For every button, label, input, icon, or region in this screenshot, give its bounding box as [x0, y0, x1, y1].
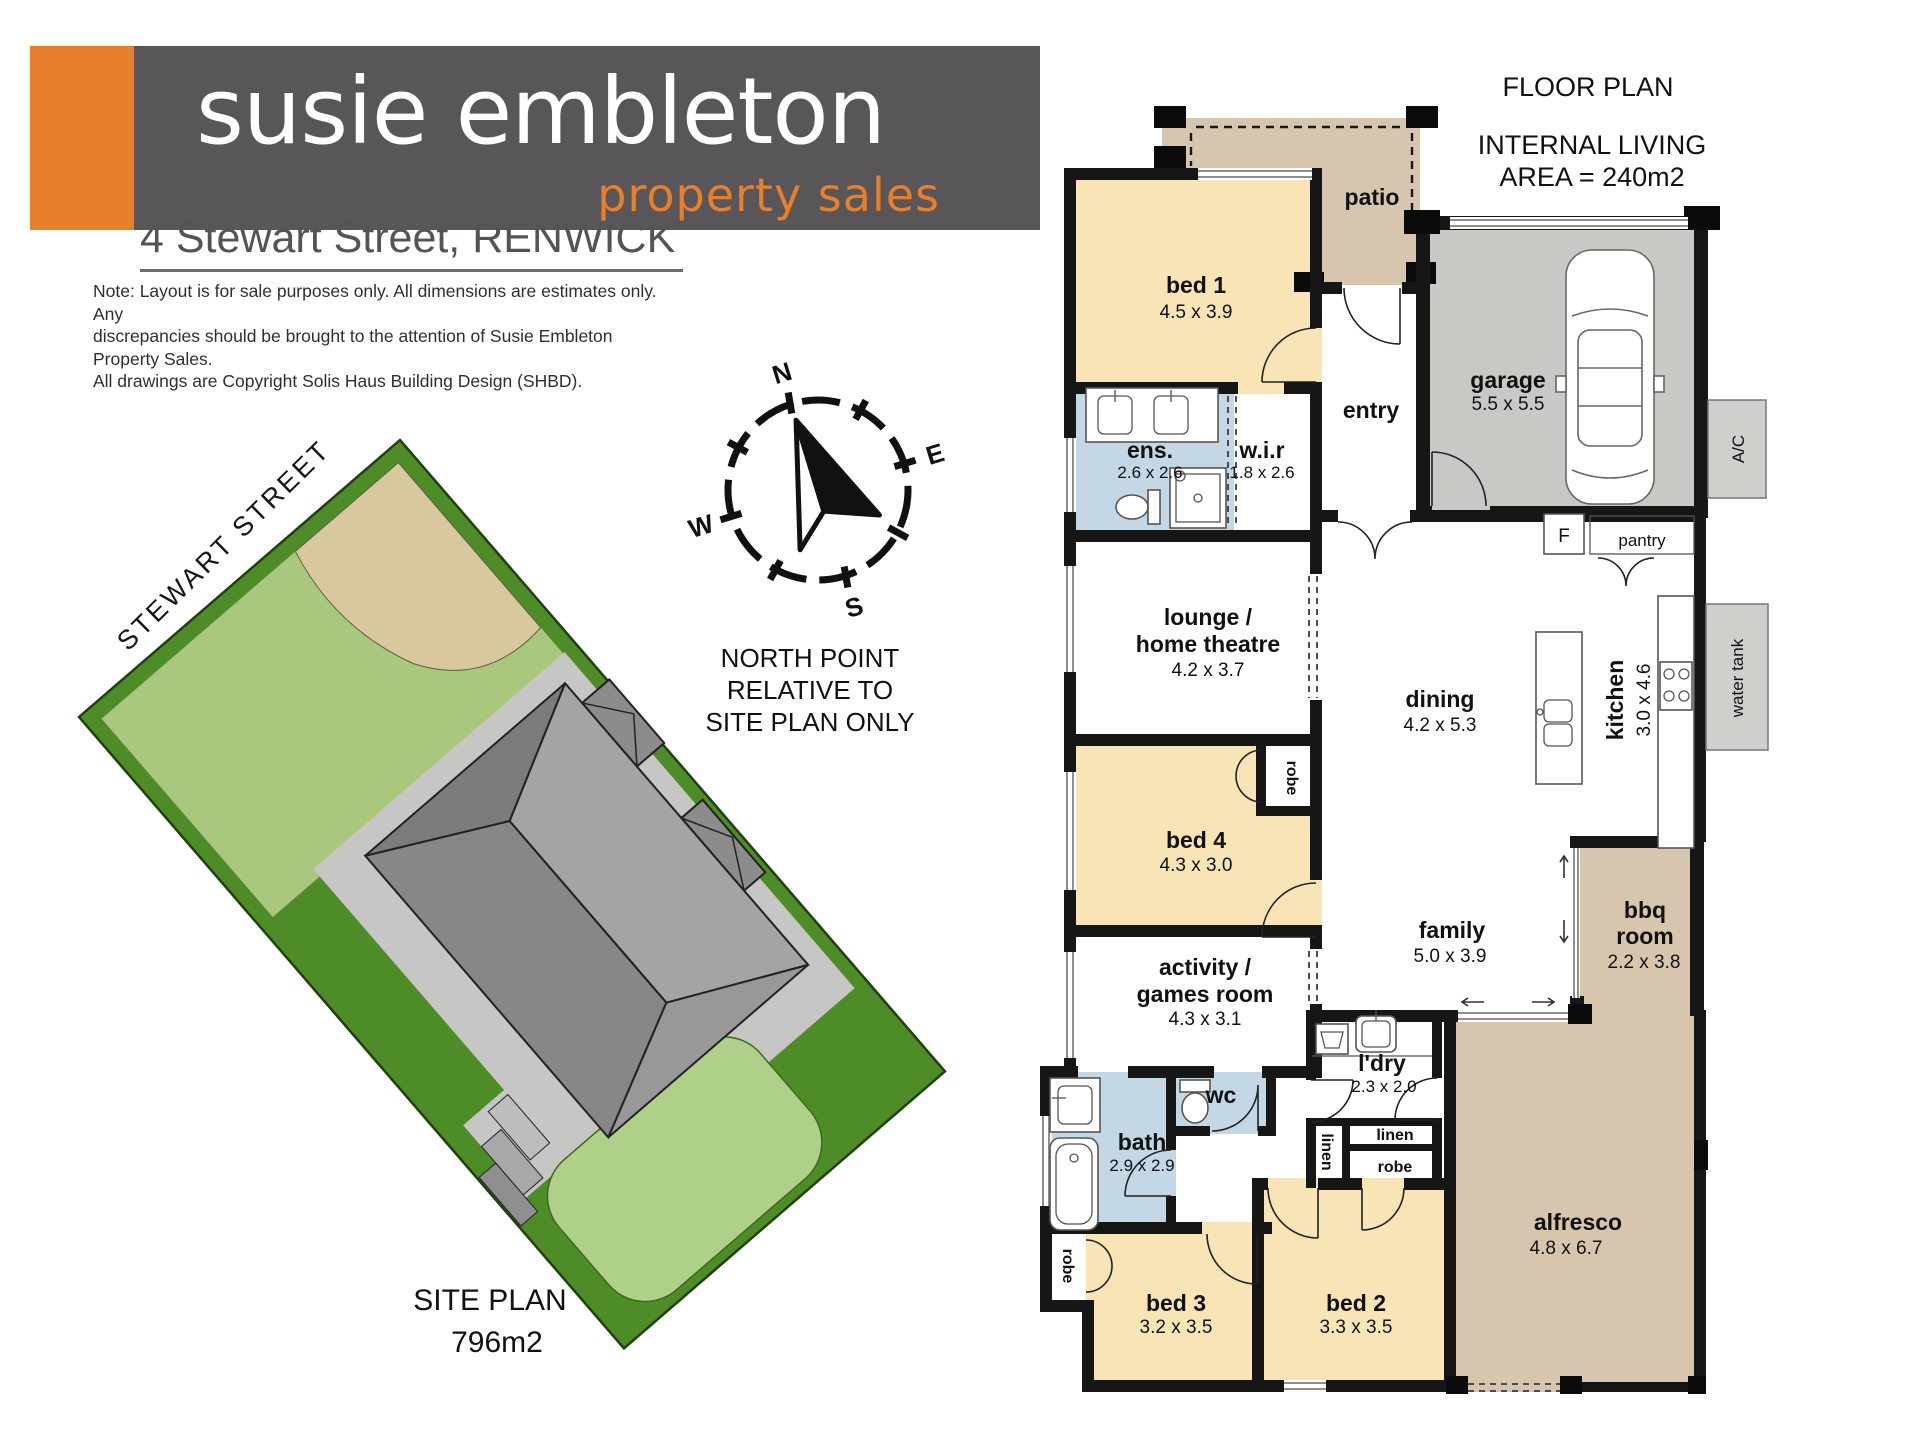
bed3-dims: 3.2 x 3.5 — [1140, 1317, 1213, 1338]
plan-canvas: STEWART STREET SITE PLAN 796m2 N E S W — [0, 0, 1920, 1439]
water-tank-label: water tank — [1728, 638, 1747, 718]
compass-icon: N E S W NORTH POINT RELATIVE TO SITE PLA… — [685, 356, 948, 737]
robe-bed4-label: robe — [1283, 761, 1300, 796]
kitchen-dims: 3.0 x 4.6 — [1634, 664, 1655, 737]
wc-label: wc — [1205, 1082, 1237, 1108]
compass-s: S — [841, 590, 866, 624]
room-alfresco — [1450, 1010, 1700, 1392]
ens-vanity-icon — [1086, 388, 1218, 442]
bath-vanity-icon — [1050, 1078, 1100, 1132]
linen-tall-label: linen — [1318, 1133, 1335, 1170]
family-label: family — [1419, 917, 1486, 943]
bbq-label-2: room — [1616, 923, 1674, 949]
ens-dims: 2.6 x 2.6 — [1117, 463, 1182, 482]
bed1-label: bed 1 — [1166, 272, 1226, 298]
ac-label: A/C — [1729, 435, 1748, 463]
kitchen-island-icon — [1536, 632, 1582, 784]
activity-dims: 4.3 x 3.1 — [1169, 1009, 1242, 1030]
alfresco-label: alfresco — [1534, 1209, 1622, 1235]
linen-label: linen — [1376, 1127, 1413, 1144]
bbq-dims: 2.2 x 3.8 — [1608, 952, 1681, 973]
bed2-dims: 3.3 x 3.5 — [1320, 1317, 1393, 1338]
site-plan: STEWART STREET SITE PLAN 796m2 — [79, 434, 946, 1359]
compass-needle — [764, 405, 883, 550]
dining-label: dining — [1406, 686, 1475, 712]
compass-w: W — [685, 508, 718, 544]
floor-plan-area-1: INTERNAL LIVING — [1478, 130, 1707, 160]
entry-label: entry — [1343, 397, 1399, 423]
bed1-dims: 4.5 x 3.9 — [1160, 302, 1233, 323]
site-plan-area: 796m2 — [451, 1326, 543, 1359]
bed2-label: bed 2 — [1326, 1290, 1386, 1316]
north-caption-1: NORTH POINT — [721, 643, 900, 673]
north-caption-2: RELATIVE TO — [727, 675, 893, 705]
floor-plan-area-2: AREA = 240m2 — [1499, 162, 1684, 192]
bbq-label-1: bbq — [1624, 897, 1666, 923]
floor-plan-title: FLOOR PLAN — [1502, 72, 1673, 102]
kitchen-label: kitchen — [1602, 660, 1628, 741]
ldry-dims: 2.3 x 2.0 — [1351, 1077, 1416, 1096]
garage-dims: 5.5 x 5.5 — [1472, 394, 1545, 415]
alfresco-dims: 4.8 x 6.7 — [1530, 1238, 1603, 1259]
robe-hall-label: robe — [1378, 1159, 1413, 1176]
lounge-dims: 4.2 x 3.7 — [1172, 660, 1245, 681]
wir-dims: 1.8 x 2.6 — [1229, 463, 1294, 482]
car-icon — [1556, 250, 1664, 504]
compass-n: N — [769, 356, 796, 390]
north-caption-3: SITE PLAN ONLY — [705, 707, 914, 737]
ens-label: ens. — [1127, 437, 1173, 463]
bed3-label: bed 3 — [1146, 1290, 1206, 1316]
floor-plan: FLOOR PLAN INTERNAL LIVING AREA = 240m2 — [1040, 72, 1768, 1394]
robe-bed3-label: robe — [1059, 1249, 1076, 1284]
bath-dims: 2.9 x 2.9 — [1109, 1156, 1174, 1175]
site-plan-title: SITE PLAN — [413, 1284, 566, 1317]
garage-label: garage — [1470, 367, 1545, 393]
dining-dims: 4.2 x 5.3 — [1404, 715, 1477, 736]
page: susie embleton property sales 4 Stewart … — [0, 0, 1920, 1439]
bed4-dims: 4.3 x 3.0 — [1160, 855, 1233, 876]
pantry-label: pantry — [1618, 531, 1666, 550]
bed4-label: bed 4 — [1166, 827, 1226, 853]
activity-label-1: activity / — [1159, 954, 1252, 980]
room-bed2 — [1258, 1178, 1450, 1392]
lounge-label-1: lounge / — [1164, 604, 1253, 630]
wir-label: w.i.r — [1238, 437, 1284, 463]
patio-label: patio — [1345, 184, 1400, 210]
room-garage — [1420, 222, 1706, 518]
compass-e: E — [922, 437, 947, 471]
ldry-label: l'dry — [1358, 1050, 1406, 1076]
bath-label: bath — [1118, 1129, 1167, 1155]
family-dims: 5.0 x 3.9 — [1414, 946, 1487, 967]
fridge-label: F — [1558, 526, 1570, 547]
lounge-label-2: home theatre — [1136, 631, 1280, 657]
kitchen-bench-stove-icon — [1658, 596, 1694, 848]
activity-label-2: games room — [1137, 981, 1274, 1007]
bathtub-icon — [1050, 1138, 1098, 1230]
